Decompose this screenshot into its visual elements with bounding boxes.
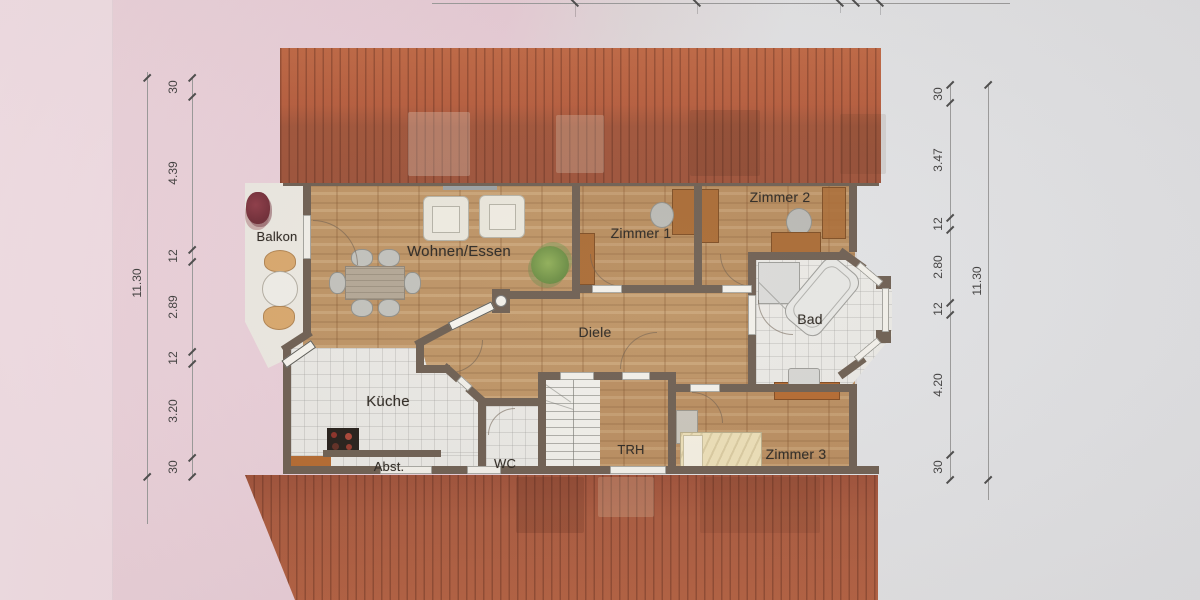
- left-overall-line: [147, 72, 148, 524]
- dim-tick: [946, 476, 954, 484]
- door-gap-zimmer1: [592, 285, 622, 293]
- wall-wc-top: [478, 398, 546, 406]
- extension-line: [840, 4, 841, 13]
- cupboard: [291, 456, 331, 466]
- bed-under-roof: [598, 477, 654, 517]
- left-chain-line: [192, 78, 193, 477]
- dim-right-3: 2.80: [931, 245, 945, 289]
- plant-icon: [531, 246, 569, 284]
- dim-left-overall: 11.30: [130, 261, 144, 305]
- door-gap-zimmer3: [690, 384, 720, 392]
- paper-edge-highlight: [0, 0, 113, 600]
- exterior-wall-right-upper: [849, 178, 857, 252]
- roof-bottom: [245, 475, 878, 600]
- dim-left-0: 30: [166, 65, 180, 109]
- window-trh-top: [622, 372, 650, 380]
- extension-line: [697, 4, 698, 14]
- room-label-bad: Bad: [750, 311, 870, 327]
- bay-window-right: [882, 288, 889, 332]
- furniture-under-roof: [690, 110, 760, 176]
- dim-left-6: 30: [166, 445, 180, 489]
- room-label-wc: WC: [445, 456, 565, 471]
- furniture-under-roof: [408, 112, 470, 176]
- armchair-seat: [489, 204, 516, 230]
- room-under-roof: [516, 477, 584, 533]
- dim-right-1: 3.47: [931, 138, 945, 182]
- dim-left-1: 4.39: [166, 151, 180, 195]
- wall-bad-bottom: [748, 384, 857, 392]
- wall-bad-top: [748, 252, 848, 260]
- room-label-diele: Diele: [535, 324, 655, 340]
- room-label-abst: Abst.: [329, 459, 449, 474]
- dining-chair: [378, 249, 400, 267]
- dim-right-2: 12: [931, 202, 945, 246]
- room-label-zimmer2: Zimmer 2: [720, 189, 840, 205]
- dining-chair: [378, 299, 400, 317]
- armchair-seat: [432, 206, 460, 233]
- room-label-zimmer1: Zimmer 1: [581, 225, 701, 241]
- dining-table: [345, 266, 405, 300]
- armchair: [479, 195, 525, 238]
- room-label-balkon: Balkon: [217, 229, 337, 244]
- dim-right-4: 12: [931, 287, 945, 331]
- window-stairs-top: [560, 372, 594, 380]
- room-under-roof: [700, 477, 820, 533]
- dim-tick: [188, 473, 196, 481]
- balcony-table: [262, 271, 298, 307]
- right-chain-line: [950, 85, 951, 480]
- extension-line: [575, 4, 576, 17]
- room-label-wohnen-essen: Wohnen/Essen: [399, 243, 519, 260]
- dim-right-5: 4.20: [931, 363, 945, 407]
- floor-plan-photo: Balkon Wohnen/Essen Zimmer 1 Zimmer 2 Di…: [0, 0, 1200, 600]
- dining-chair: [351, 299, 373, 317]
- roof-top: [280, 48, 881, 183]
- burner: [332, 443, 339, 450]
- dining-chair: [329, 272, 346, 294]
- exterior-wall-left-lower: [283, 350, 291, 474]
- room-label-trh: TRH: [571, 442, 691, 457]
- armchair: [423, 196, 469, 241]
- dim-right-6: 30: [931, 445, 945, 489]
- dim-left-4: 12: [166, 336, 180, 380]
- wardrobe: [701, 189, 719, 243]
- right-overall-line: [988, 85, 989, 500]
- room-label-kueche: Küche: [328, 393, 448, 410]
- dim-right-0: 30: [931, 72, 945, 116]
- burner: [331, 432, 337, 438]
- door-hinge: [495, 295, 507, 307]
- kitchen-counter-wall: [323, 450, 441, 457]
- burner: [345, 433, 352, 440]
- furniture-under-roof: [840, 114, 886, 174]
- dim-left-2: 12: [166, 234, 180, 278]
- top-dimension-line: [432, 3, 1010, 4]
- dining-chair: [404, 272, 421, 294]
- room-label-zimmer3: Zimmer 3: [736, 446, 856, 462]
- furniture-under-roof: [556, 115, 604, 173]
- wall-living-diele: [505, 291, 575, 299]
- flower-box: [246, 192, 270, 224]
- wall-living-zimmer1: [572, 185, 580, 299]
- extension-line: [880, 4, 881, 15]
- window-bottom-3: [610, 466, 666, 474]
- wall-stairs-top: [538, 372, 676, 380]
- balcony-chair: [264, 250, 296, 272]
- dim-right-overall: 11.30: [970, 259, 984, 303]
- balcony-chair: [263, 306, 295, 330]
- dim-left-3: 2.89: [166, 285, 180, 329]
- dim-left-5: 3.20: [166, 389, 180, 433]
- door-gap-zimmer2: [722, 285, 752, 293]
